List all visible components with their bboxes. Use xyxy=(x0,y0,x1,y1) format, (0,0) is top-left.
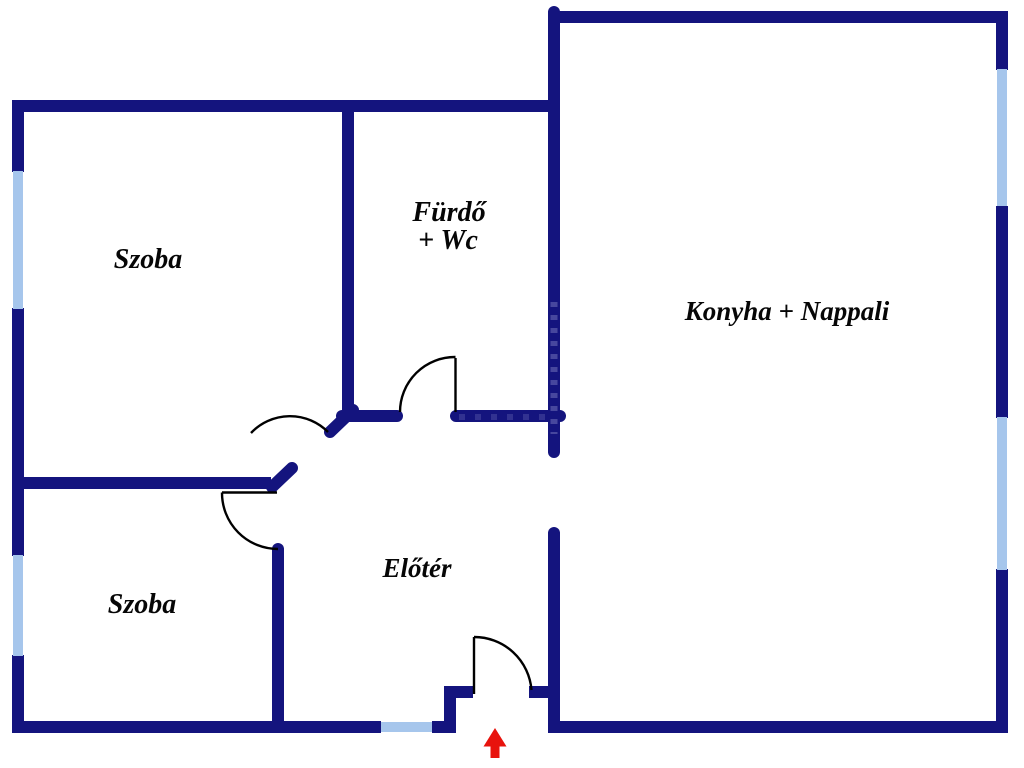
entrance-up-arrow-icon xyxy=(484,728,507,758)
door-arc-entry xyxy=(474,637,532,690)
room-label-szoba-bottom: Szoba xyxy=(108,589,176,620)
room-label-furdo-line2: + Wc xyxy=(418,225,478,256)
room-label-eloter: Előtér xyxy=(381,553,451,583)
room-label-szoba-top: Szoba xyxy=(114,244,182,275)
windows-group xyxy=(18,69,1002,727)
room-labels-group: Szoba Fürdő + Wc Konyha + Nappali Szoba … xyxy=(108,197,890,620)
floor-plan-canvas: Szoba Fürdő + Wc Konyha + Nappali Szoba … xyxy=(0,0,1024,768)
room-label-furdo-line1: Fürdő xyxy=(411,197,487,228)
wall-szoba-bottom-diagonal-cap xyxy=(272,468,292,487)
doors-group xyxy=(222,357,532,694)
room-label-konyha-nappali: Konyha + Nappali xyxy=(684,296,890,326)
wall-jamb-diagonal xyxy=(330,410,353,432)
door-arc-szoba-top xyxy=(251,416,328,433)
walls-group xyxy=(12,11,1008,733)
floor-plan-page: Szoba Fürdő + Wc Konyha + Nappali Szoba … xyxy=(0,0,1024,768)
door-arc-szoba-bottom xyxy=(222,493,278,550)
wall-jambs-group xyxy=(272,12,560,727)
door-arc-bathroom xyxy=(400,357,456,412)
